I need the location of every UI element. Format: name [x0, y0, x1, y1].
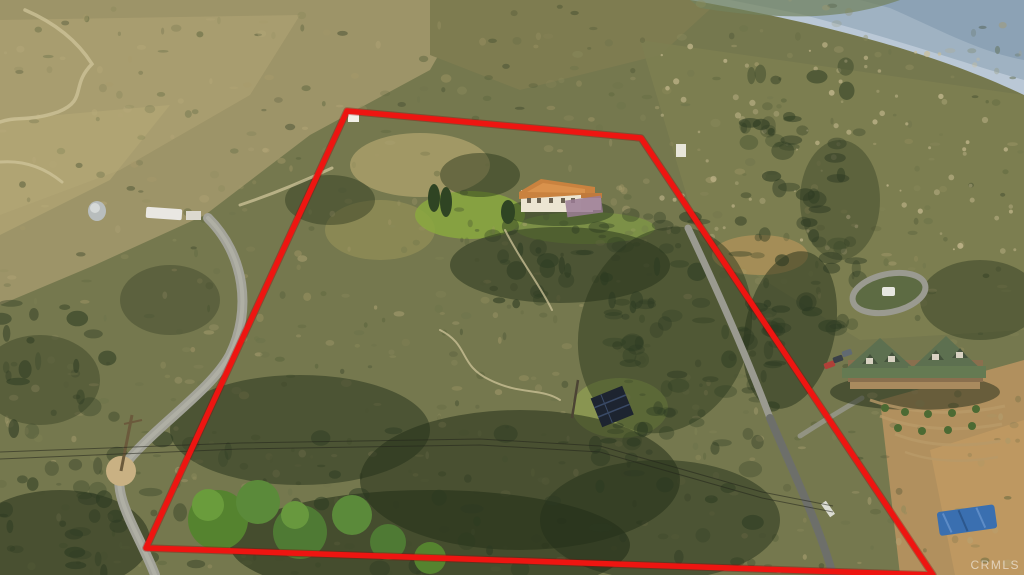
water-tank-upper-right [676, 144, 686, 157]
small-shed [186, 211, 201, 220]
mls-watermark: CRMLS [970, 558, 1020, 572]
aerial-property-photo: CRMLS [0, 0, 1024, 575]
van-in-driveway [882, 287, 895, 296]
